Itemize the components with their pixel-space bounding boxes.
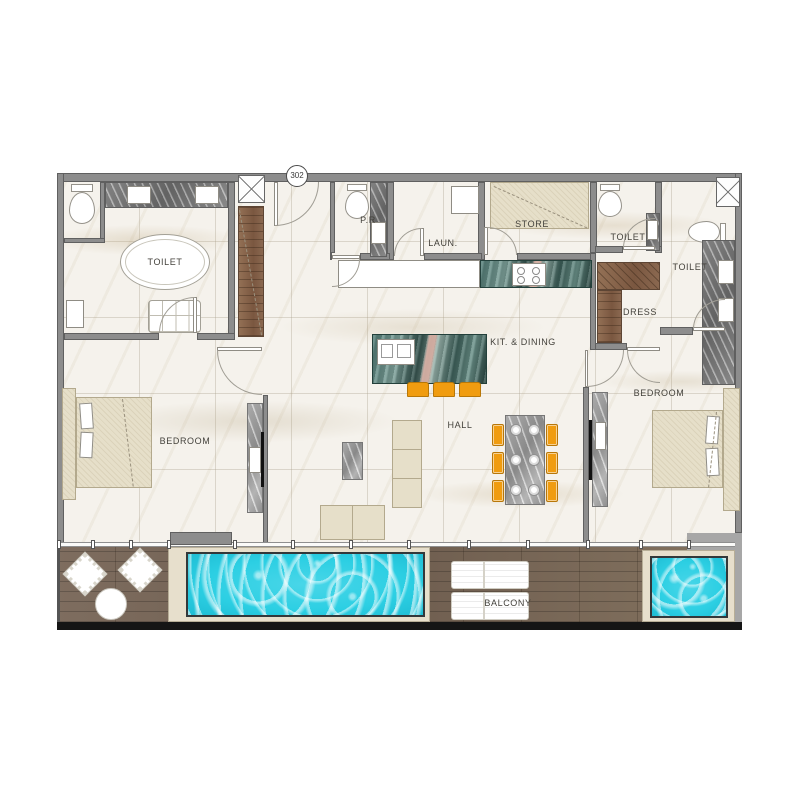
sink-bowl xyxy=(381,344,393,358)
washer-icon xyxy=(451,186,479,214)
window-mullion xyxy=(129,540,133,549)
window-mullion xyxy=(91,540,95,549)
toilet-icon xyxy=(69,192,95,224)
window-mullion xyxy=(586,540,590,549)
wall xyxy=(517,253,595,260)
pillow xyxy=(79,432,93,459)
plate-icon xyxy=(510,424,522,436)
shaft-icon xyxy=(716,177,740,207)
dining-chair xyxy=(492,480,504,502)
dining-table xyxy=(505,415,545,505)
room-label-hall: HALL xyxy=(448,420,473,430)
hob-icon xyxy=(512,263,546,286)
toilet-tank-icon xyxy=(720,223,726,241)
window-mullion xyxy=(407,540,411,549)
island-sink-icon xyxy=(377,339,415,365)
room-label-store: STORE xyxy=(515,219,549,229)
room-label-toilet-right: TOILET xyxy=(673,262,708,272)
window-mullion xyxy=(687,540,691,549)
room-label-kitchen-dining: KIT. & DINING xyxy=(490,337,556,347)
plate-icon xyxy=(528,424,540,436)
pool xyxy=(186,552,425,617)
wall-pier xyxy=(170,532,232,545)
plate-icon xyxy=(528,454,540,466)
tv-icon xyxy=(261,432,264,487)
dining-chair xyxy=(492,424,504,446)
coffee-table xyxy=(342,442,363,480)
wall xyxy=(660,327,693,335)
tv-cabinet xyxy=(249,447,261,473)
sink-bowl xyxy=(397,344,411,358)
tv-icon xyxy=(589,420,592,480)
wall xyxy=(330,182,335,253)
window-mullion xyxy=(639,540,643,549)
bath-cabinet xyxy=(66,300,84,328)
exterior-wall-top xyxy=(57,173,742,182)
window-mullion xyxy=(167,540,171,549)
wall xyxy=(424,253,482,260)
toilet-tank-icon xyxy=(600,184,620,191)
balcony-side-wall xyxy=(57,545,60,622)
hob-burner xyxy=(532,276,540,284)
window-mullion xyxy=(467,540,471,549)
bar-stool xyxy=(459,382,481,397)
tv-cabinet xyxy=(595,422,606,450)
dining-chair xyxy=(492,452,504,474)
slab-edge xyxy=(57,622,742,630)
sink-icon xyxy=(371,222,386,244)
hob-burner xyxy=(517,267,525,275)
headboard xyxy=(723,388,740,511)
room-label-bedroom-right: BEDROOM xyxy=(634,388,685,398)
sink-icon xyxy=(195,186,219,204)
bar-stool xyxy=(407,382,429,397)
wall xyxy=(387,182,394,260)
wall xyxy=(590,182,597,253)
room-label-toilet-guest: TOILET xyxy=(611,232,646,242)
window-wall xyxy=(57,542,735,547)
window-mullion xyxy=(57,540,61,549)
hob-burner xyxy=(517,276,525,284)
window-mullion xyxy=(291,540,295,549)
plate-icon xyxy=(528,484,540,496)
dining-chair xyxy=(546,480,558,502)
shaft-icon xyxy=(238,175,265,203)
pool xyxy=(650,556,728,618)
wall xyxy=(197,333,235,340)
wall xyxy=(228,182,235,340)
wall xyxy=(595,343,627,350)
toilet-tank-icon xyxy=(347,184,367,191)
plate-icon xyxy=(510,484,522,496)
wardrobe xyxy=(597,290,622,343)
unit-number-badge: 302 xyxy=(286,165,308,187)
hob-burner xyxy=(532,267,540,275)
wall xyxy=(64,238,105,243)
room-label-laundry: LAUN. xyxy=(428,238,458,248)
toilet-icon xyxy=(598,191,622,217)
sink-icon xyxy=(127,186,151,204)
window-mullion xyxy=(233,540,237,549)
room-label-powder: P.R xyxy=(360,215,376,225)
unit-number: 302 xyxy=(290,171,303,180)
dining-chair xyxy=(546,452,558,474)
room-label-balcony: BALCONY xyxy=(484,598,531,608)
sun-lounger xyxy=(451,561,529,589)
window-mullion xyxy=(349,540,353,549)
window-mullion xyxy=(526,540,530,549)
loveseat xyxy=(320,505,385,540)
toilet-tank-icon xyxy=(71,184,93,192)
wardrobe xyxy=(597,262,660,290)
sofa xyxy=(392,420,422,508)
room-label-toilet-master: TOILET xyxy=(148,257,183,267)
plate-icon xyxy=(510,454,522,466)
headboard xyxy=(62,388,76,500)
floor-plan: 302 TOILET P.R LAUN. STORE TOILET TOILET… xyxy=(57,170,742,630)
pillow xyxy=(79,403,94,430)
room-label-dress: DRESS xyxy=(623,307,657,317)
round-table xyxy=(95,588,127,620)
bar-stool xyxy=(433,382,455,397)
wall xyxy=(595,246,623,253)
room-label-bedroom-left: BEDROOM xyxy=(160,436,211,446)
sink-icon xyxy=(718,260,734,284)
wall xyxy=(64,333,159,340)
dining-chair xyxy=(546,424,558,446)
